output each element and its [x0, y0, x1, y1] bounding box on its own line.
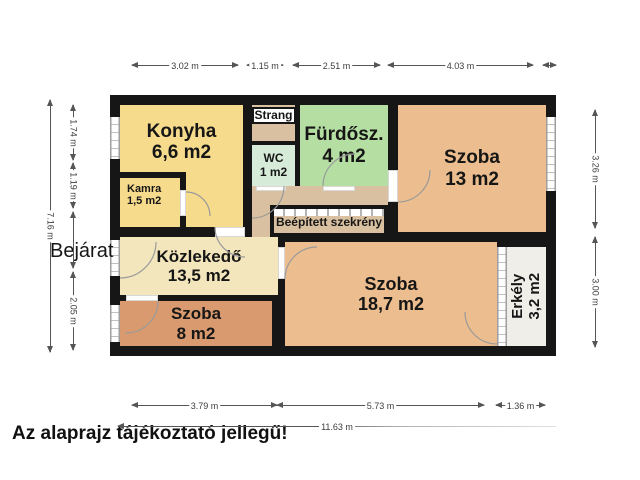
- dim-right-1: 3.26 m: [595, 110, 596, 228]
- dim-bottom-overall-label: 11.63 m: [319, 422, 355, 432]
- room-kamra: Kamra 1,5 m2: [120, 172, 186, 227]
- room-strang-name: Strang: [252, 107, 296, 124]
- room-szoba-8-name: Szoba: [171, 304, 221, 323]
- room-kamra-area: 1,5 m2: [127, 195, 161, 207]
- dim-left-overall: 7.16 m: [50, 100, 51, 352]
- room-konyha-area: 6,6 m2: [152, 142, 211, 163]
- room-konyha-name: Konyha: [147, 121, 217, 142]
- dim-bottom-overall: 11.63 m: [118, 426, 556, 427]
- built-in-wardrobe: Beépített szekrény: [270, 205, 388, 237]
- dim-right-2: 3.00 m: [595, 237, 596, 347]
- dim-right-2-label: 3.00 m: [591, 276, 601, 308]
- dim-left-1: 1.74 m: [73, 105, 74, 160]
- room-erkely-label: Erkély 3,2 m2: [509, 273, 544, 320]
- dim-bottom-2-label: 5.73 m: [365, 401, 397, 411]
- room-wc: WC 1 m2: [252, 145, 295, 186]
- room-kozlekedo-area: 13,5 m2: [168, 266, 230, 285]
- door-gap-kamra: [180, 190, 186, 216]
- room-furdoszoba-area: 4 m2: [322, 146, 365, 167]
- dim-left-3-label: 2.05 m: [69, 295, 79, 327]
- dim-bottom-1-label: 3.79 m: [189, 401, 221, 411]
- window-konyha: [110, 117, 120, 159]
- room-erkely-name: Erkély: [509, 273, 526, 320]
- dim-top-wall: [543, 65, 556, 66]
- room-kozlekedo: Közlekedő 13,5 m2: [120, 237, 278, 295]
- dim-bottom-3-label: 1.36 m: [505, 401, 537, 411]
- room-kozlekedo-name: Közlekedő: [156, 247, 241, 266]
- dim-bottom-1: 3.79 m: [132, 405, 277, 406]
- door-gap-szoba-13: [388, 170, 398, 202]
- room-szoba-13-area: 13 m2: [445, 169, 499, 190]
- dim-left-1-label: 1.74 m: [69, 117, 79, 149]
- room-szoba-18-7-name: Szoba: [364, 274, 417, 294]
- built-in-wardrobe-label: Beépített szekrény: [276, 216, 382, 229]
- dim-top-4-label: 4.03 m: [445, 61, 477, 71]
- room-kamra-name: Kamra: [127, 183, 161, 195]
- door-gap-furdoszoba: [323, 186, 355, 191]
- room-wc-name: WC: [264, 152, 284, 165]
- dim-top-3: 2.51 m: [293, 65, 380, 66]
- room-wc-area: 1 m2: [260, 166, 287, 179]
- dim-top-3-label: 2.51 m: [321, 61, 353, 71]
- door-gap-konyha: [215, 227, 245, 237]
- room-szoba-8-area: 8 m2: [177, 324, 216, 343]
- door-gap-szoba-8: [126, 295, 158, 301]
- room-szoba-18-7: Szoba 18,7 m2: [285, 242, 497, 346]
- room-furdoszoba: Fürdősz. 4 m2: [300, 105, 388, 186]
- dim-left-hidden: [73, 212, 74, 268]
- dim-left-2-label: 1.19 m: [69, 170, 79, 202]
- entrance-label: Bejárat: [50, 240, 113, 263]
- room-szoba-18-7-area: 18,7 m2: [358, 294, 424, 314]
- dim-right-1-label: 3.26 m: [591, 153, 601, 185]
- dim-top-2: 1.15 m: [247, 65, 283, 66]
- room-strang: Strang: [252, 105, 295, 141]
- floorplan-page: Konyha 6,6 m2 Strang WC 1 m2 Fürdősz. 4 …: [0, 0, 640, 480]
- dim-left-3: 2.05 m: [73, 272, 74, 350]
- dim-top-1: 3.02 m: [132, 65, 238, 66]
- dim-bottom-3: 1.36 m: [496, 405, 545, 406]
- room-szoba-13: Szoba 13 m2: [398, 105, 546, 232]
- room-erkely: Erkély 3,2 m2: [507, 247, 546, 346]
- dim-bottom-2: 5.73 m: [277, 405, 484, 406]
- room-furdoszoba-name: Fürdősz.: [304, 124, 383, 145]
- room-szoba-13-name: Szoba: [444, 147, 500, 168]
- window-szoba-13: [546, 117, 556, 191]
- dim-left-2: 1.19 m: [73, 163, 74, 208]
- dim-top-1-label: 3.02 m: [169, 61, 201, 71]
- dim-top-4: 4.03 m: [388, 65, 533, 66]
- door-gap-wc: [256, 186, 286, 191]
- room-erkely-area: 3,2 m2: [527, 273, 544, 320]
- dim-top-2-label: 1.15 m: [249, 61, 281, 71]
- window-szoba-8: [110, 305, 120, 342]
- dim-left-overall-label: 7.16 m: [46, 210, 56, 242]
- window-erkely: [497, 247, 507, 346]
- room-szoba-8: Szoba 8 m2: [120, 301, 272, 346]
- door-gap-szoba-18-7: [278, 247, 285, 279]
